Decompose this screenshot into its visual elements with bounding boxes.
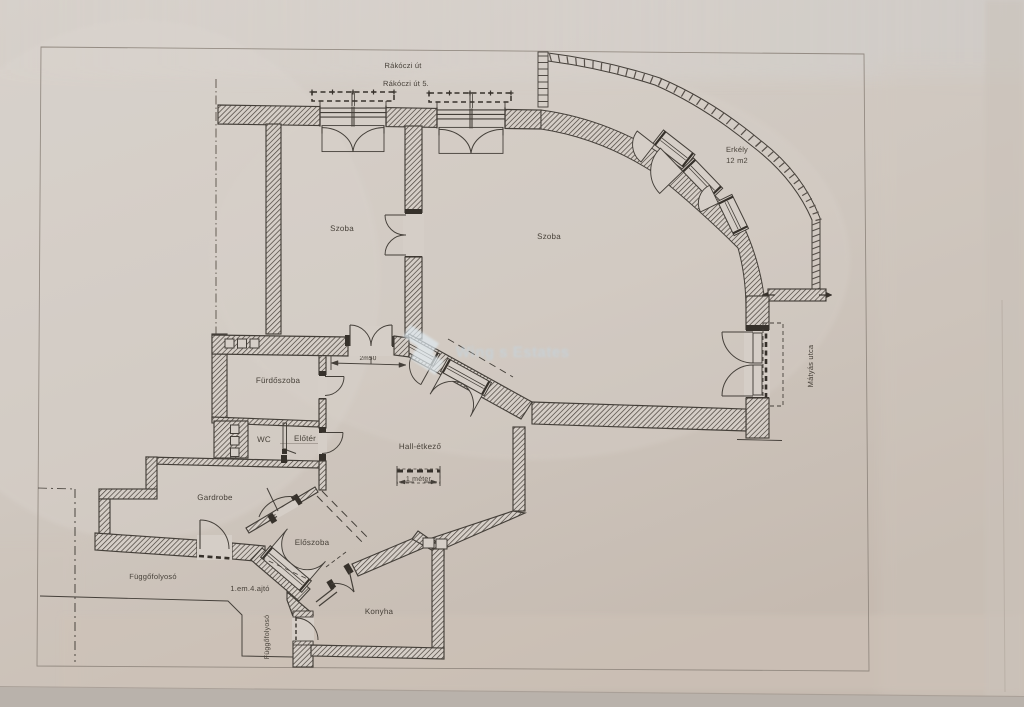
svg-text:Konyha: Konyha (365, 607, 394, 616)
svg-text:Szoba: Szoba (330, 224, 354, 233)
svg-text:Szoba: Szoba (537, 232, 561, 241)
svg-text:Wing s Estates: Wing s Estates (456, 344, 570, 361)
svg-text:Mátyás utca: Mátyás utca (806, 344, 815, 387)
svg-text:Rákóczi út: Rákóczi út (384, 61, 422, 70)
svg-text:Előszoba: Előszoba (295, 538, 330, 547)
svg-text:Gardrobe: Gardrobe (197, 493, 233, 502)
svg-text:Erkély: Erkély (726, 145, 748, 154)
svg-text:Függőfolyosó: Függőfolyosó (129, 572, 176, 581)
svg-text:WC: WC (257, 435, 271, 444)
svg-text:Fürdőszoba: Fürdőszoba (256, 376, 301, 385)
svg-text:Rákóczi út 5.: Rákóczi út 5. (383, 79, 429, 88)
svg-text:Hall-étkező: Hall-étkező (399, 442, 442, 451)
svg-text:1.em.4.ajtó: 1.em.4.ajtó (230, 584, 269, 593)
svg-text:Függőfolyosó: Függőfolyosó (263, 615, 271, 659)
svg-text:Előtér: Előtér (294, 434, 316, 443)
svg-text:12 m2: 12 m2 (726, 156, 748, 165)
svg-text:2m50: 2m50 (359, 355, 376, 362)
